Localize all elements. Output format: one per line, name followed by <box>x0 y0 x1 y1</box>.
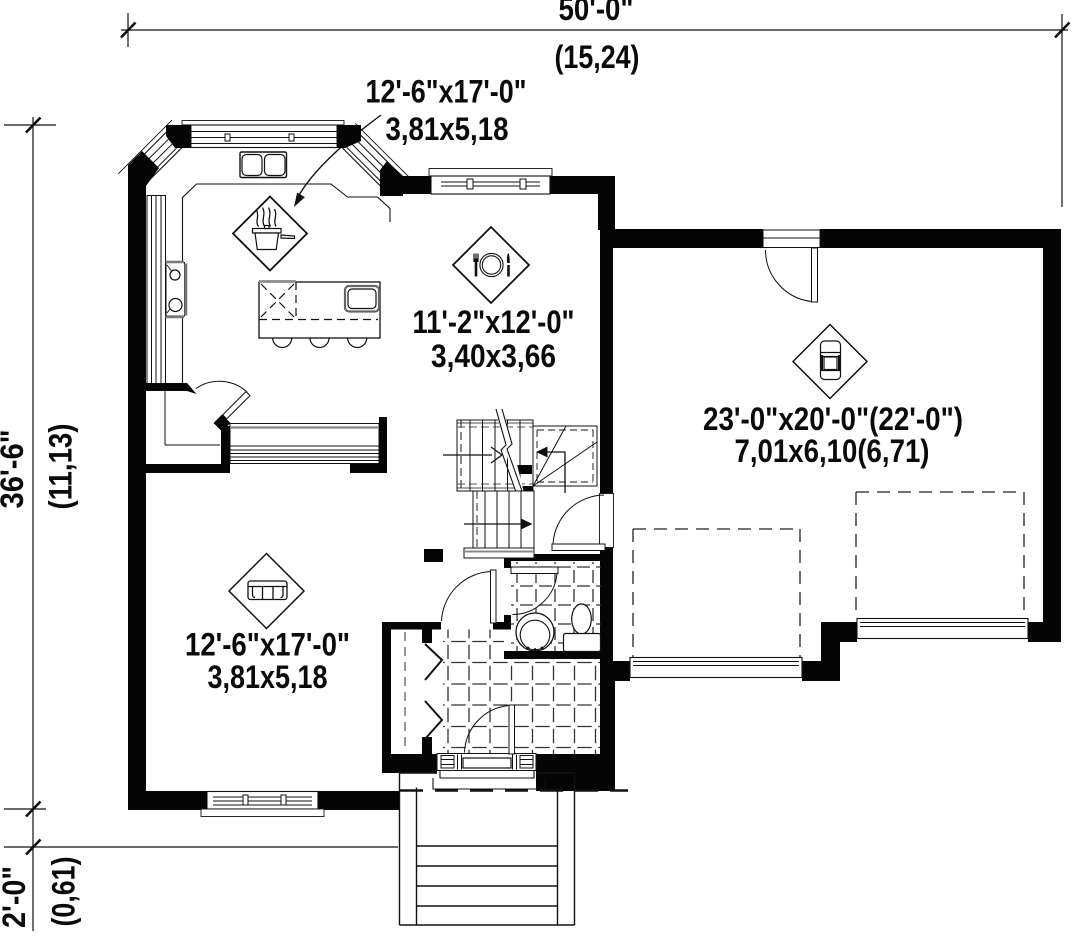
svg-text:3,81x5,18: 3,81x5,18 <box>386 111 509 147</box>
svg-text:50'-0": 50'-0" <box>559 0 634 27</box>
svg-text:12'-6"x17'-0": 12'-6"x17'-0" <box>366 74 527 110</box>
svg-text:3,81x5,18: 3,81x5,18 <box>208 659 328 695</box>
svg-text:2'-0": 2'-0" <box>0 866 32 928</box>
svg-text:(11,13): (11,13) <box>43 424 79 510</box>
svg-text:(0,61): (0,61) <box>46 857 82 927</box>
svg-text:3,40x3,66: 3,40x3,66 <box>431 338 556 374</box>
svg-text:36'-6": 36'-6" <box>0 430 30 509</box>
svg-text:(15,24): (15,24) <box>555 39 640 75</box>
svg-text:23'-0"x20'-0"(22'-0"): 23'-0"x20'-0"(22'-0") <box>703 401 963 437</box>
svg-text:11'-2"x12'-0": 11'-2"x12'-0" <box>413 304 575 340</box>
svg-text:12'-6"x17'-0": 12'-6"x17'-0" <box>185 627 350 663</box>
svg-text:7,01x6,10(6,71): 7,01x6,10(6,71) <box>735 433 930 469</box>
